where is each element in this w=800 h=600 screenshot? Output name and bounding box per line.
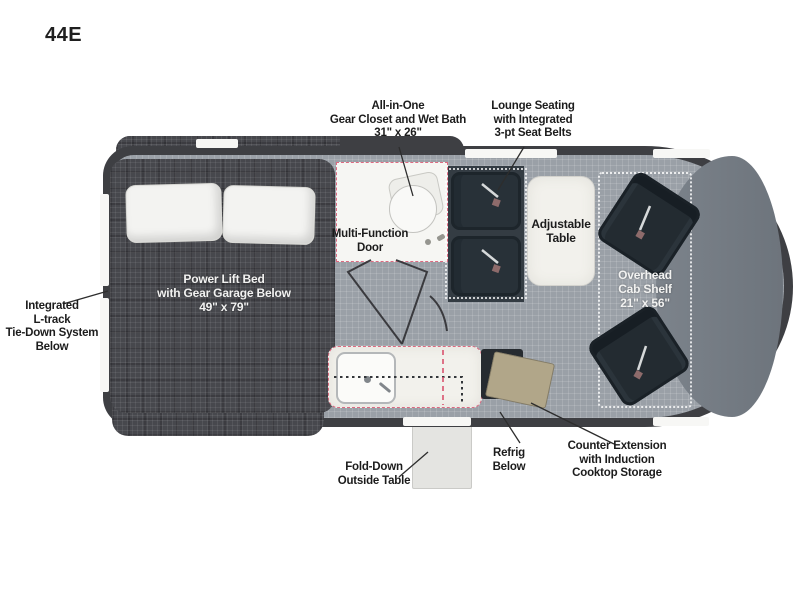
text-line: 3-pt Seat Belts xyxy=(477,127,589,141)
text-line: with Gear Garage Below xyxy=(124,286,324,300)
callout-gear-closet-wet-bath: All-in-One Gear Closet and Wet Bath 31" … xyxy=(318,100,478,141)
text-line: Counter Extension xyxy=(556,440,678,454)
text-line: Door xyxy=(330,242,410,256)
text-line: Outside Table xyxy=(318,475,430,489)
floorplan-canvas: 44E Overhead Cab Shelf 21" x 56" Power L… xyxy=(0,0,800,600)
window-bottom-front xyxy=(653,417,709,426)
bath-fixture-dot xyxy=(425,239,431,245)
text-line: Adjustable xyxy=(531,217,590,231)
text-line: 49" x 79" xyxy=(124,300,324,314)
callout-power-lift-bed: Power Lift Bed with Gear Garage Below 49… xyxy=(124,272,324,314)
text-line: Gear Closet and Wet Bath xyxy=(318,114,478,128)
pillow-right xyxy=(222,185,315,245)
sink xyxy=(336,352,396,404)
text-line: Refrig xyxy=(478,447,540,461)
callout-overhead-cab-shelf: Overhead Cab Shelf 21" x 56" xyxy=(600,268,690,310)
text-line: Table xyxy=(531,231,590,245)
text-line: Power Lift Bed xyxy=(124,272,324,286)
text-line: L-track xyxy=(2,314,102,328)
window-top-middle xyxy=(465,149,557,158)
text-line: Cab Shelf xyxy=(600,282,690,296)
text-line: All-in-One xyxy=(318,100,478,114)
rear-door-window-upper xyxy=(100,194,109,286)
kitchen-counter xyxy=(328,346,482,408)
callout-ltrack-tiedown: Integrated L-track Tie-Down System Below xyxy=(2,300,102,354)
text-line: Below xyxy=(478,461,540,475)
window-top-rear xyxy=(196,139,238,148)
pillow-left xyxy=(125,183,222,243)
text-line: Fold-Down xyxy=(318,461,430,475)
lounge-dotted-outline xyxy=(445,168,527,299)
callout-lounge-seating: Lounge Seating with Integrated 3-pt Seat… xyxy=(477,100,589,141)
text-line: Integrated xyxy=(2,300,102,314)
callout-counter-extension: Counter Extension with Induction Cooktop… xyxy=(556,440,678,481)
callout-multi-function-door: Multi-Function Door xyxy=(330,228,410,255)
text-line: 31" x 26" xyxy=(318,127,478,141)
text-line: Lounge Seating xyxy=(477,100,589,114)
toilet-icon xyxy=(389,185,437,233)
text-line: Below xyxy=(2,341,102,355)
callout-adjustable-table: Adjustable Table xyxy=(531,217,590,245)
callout-refrig-below: Refrig Below xyxy=(478,447,540,474)
window-top-front xyxy=(653,149,710,158)
page-title: 44E xyxy=(45,24,82,47)
text-line: Tie-Down System xyxy=(2,327,102,341)
sliding-door-opening xyxy=(403,417,471,426)
faucet-icon xyxy=(364,376,371,383)
faucet-lever xyxy=(379,382,392,393)
text-line: Overhead xyxy=(600,268,690,282)
text-line: 21" x 56" xyxy=(600,296,690,310)
text-line: Cooktop Storage xyxy=(556,467,678,481)
text-line: with Induction xyxy=(556,454,678,468)
text-line: with Integrated xyxy=(477,114,589,128)
adjustable-table: Adjustable Table xyxy=(527,176,595,286)
callout-fold-down-table: Fold-Down Outside Table xyxy=(318,461,430,488)
text-line: Multi-Function xyxy=(330,228,410,242)
